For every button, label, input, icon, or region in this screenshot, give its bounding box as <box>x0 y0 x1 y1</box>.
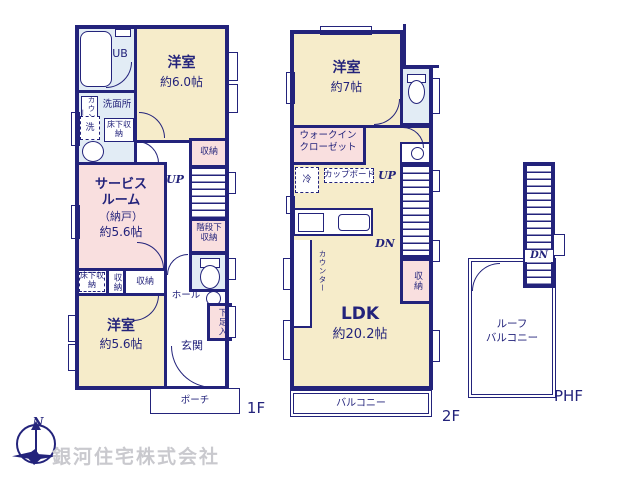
toilet-1f <box>82 141 104 162</box>
watermark-company: 銀河住宅株式会社 <box>52 447 292 469</box>
window-toilet-1f <box>226 258 236 280</box>
roof-balcony-line1: ルーフ <box>468 318 556 330</box>
hall-label: ホール <box>168 291 204 302</box>
washer-label: 洗 <box>80 123 100 133</box>
stairs-dn-label-2f: DN <box>374 238 396 251</box>
cupboard-label: カップボード <box>324 171 374 181</box>
floor2-label: 2F <box>436 408 466 425</box>
storage-2f-label: 収納 <box>410 265 422 297</box>
door-arc-genkan <box>171 346 213 388</box>
window-western56-left-1 <box>68 315 79 342</box>
stairs-2f <box>400 164 433 258</box>
window-kitchen-left <box>286 196 295 214</box>
western6-name: 洋室 <box>134 55 229 71</box>
toilet-2f-bowl <box>408 80 425 104</box>
door-arc-toilet-1f <box>167 254 188 275</box>
underfloor-storage-washroom-label: 床下収納 <box>106 120 132 138</box>
porch-label: ポーチ <box>150 396 240 407</box>
outline-2f-notch <box>403 24 439 68</box>
floor-plan-canvas: UB カウンター 洗面所 洗 床下収納 洋室 約6.0帖 サービス ルーム （納… <box>0 0 640 480</box>
western6-size: 約6.0帖 <box>134 76 229 90</box>
stove <box>298 213 324 232</box>
under-stairs-line2: 収納 <box>189 234 229 244</box>
western7-name: 洋室 <box>290 60 403 76</box>
stairs-phf <box>523 162 555 288</box>
stairs-1f <box>189 166 229 220</box>
wic-line1: ウォークイン <box>290 131 366 142</box>
window-shoe-box <box>226 306 236 338</box>
window-stairs-2f-2 <box>430 240 440 262</box>
window-western7-top <box>320 26 372 35</box>
western56-size: 約5.6帖 <box>75 338 167 352</box>
service-line2: ルーム <box>75 194 167 209</box>
kitchen-counter <box>293 208 373 236</box>
bath-shelf <box>115 29 131 37</box>
window-ldk-right <box>429 330 440 362</box>
room-toilet-2f <box>400 66 433 126</box>
storage-top-right-label: 収納 <box>189 147 229 157</box>
shoe-box-label: 下足入 <box>213 306 226 338</box>
window-toilet-2f <box>430 78 440 114</box>
window-washroom-left <box>71 112 80 146</box>
toilet-bowl <box>200 265 220 289</box>
stairs-up-label-1f: UP <box>163 174 187 187</box>
window-western56-left-2 <box>68 344 79 371</box>
storage-b-label: 収納 <box>123 277 167 287</box>
window-ldk-left-1 <box>283 258 294 290</box>
washroom-label: 洗面所 <box>98 100 136 111</box>
ldk-name: LDK <box>310 305 410 325</box>
service-line3: （納戸） <box>75 211 167 224</box>
western56-name: 洋室 <box>75 318 167 334</box>
window-western7-left <box>286 72 295 104</box>
roof-balcony-line2: バルコニー <box>468 332 556 344</box>
unit-bath-label: UB <box>106 48 134 61</box>
window-western6-right-2 <box>225 84 238 113</box>
stairs-dn-label-phf: DN <box>525 250 553 262</box>
kitchen-sink <box>338 214 370 231</box>
window-stairs-phf <box>553 234 565 256</box>
storage-a-label: 収納 <box>111 271 121 293</box>
service-line1: サービス <box>75 178 167 193</box>
service-size: 約5.6帖 <box>75 226 167 240</box>
balcony-2f-label: バルコニー <box>290 398 432 410</box>
window-western6-right-1 <box>225 52 238 81</box>
door-arc-washroom <box>137 141 159 163</box>
window-ldk-left-2 <box>283 320 294 360</box>
window-stairs-2f-1 <box>430 170 440 192</box>
underfloor-storage-2-label: 床下収納 <box>79 271 105 289</box>
western7-size: 約7帖 <box>290 81 403 95</box>
stairs-up-label-2f: UP <box>376 170 398 183</box>
window-service-left <box>71 205 80 239</box>
ldk-size: 約20.2帖 <box>310 328 410 343</box>
room-toilet-1f <box>189 252 229 292</box>
wic-line2: クローゼット <box>290 143 366 154</box>
window-stairs-1f <box>226 172 236 194</box>
compass-north-label: N <box>30 416 46 430</box>
floor1-label: 1F <box>242 400 270 417</box>
hand-sink-2f <box>411 147 424 160</box>
counter-label-2f: カウンター <box>313 245 326 297</box>
phf-label: PHF <box>554 388 594 405</box>
refrigerator-label: 冷 <box>295 175 319 185</box>
